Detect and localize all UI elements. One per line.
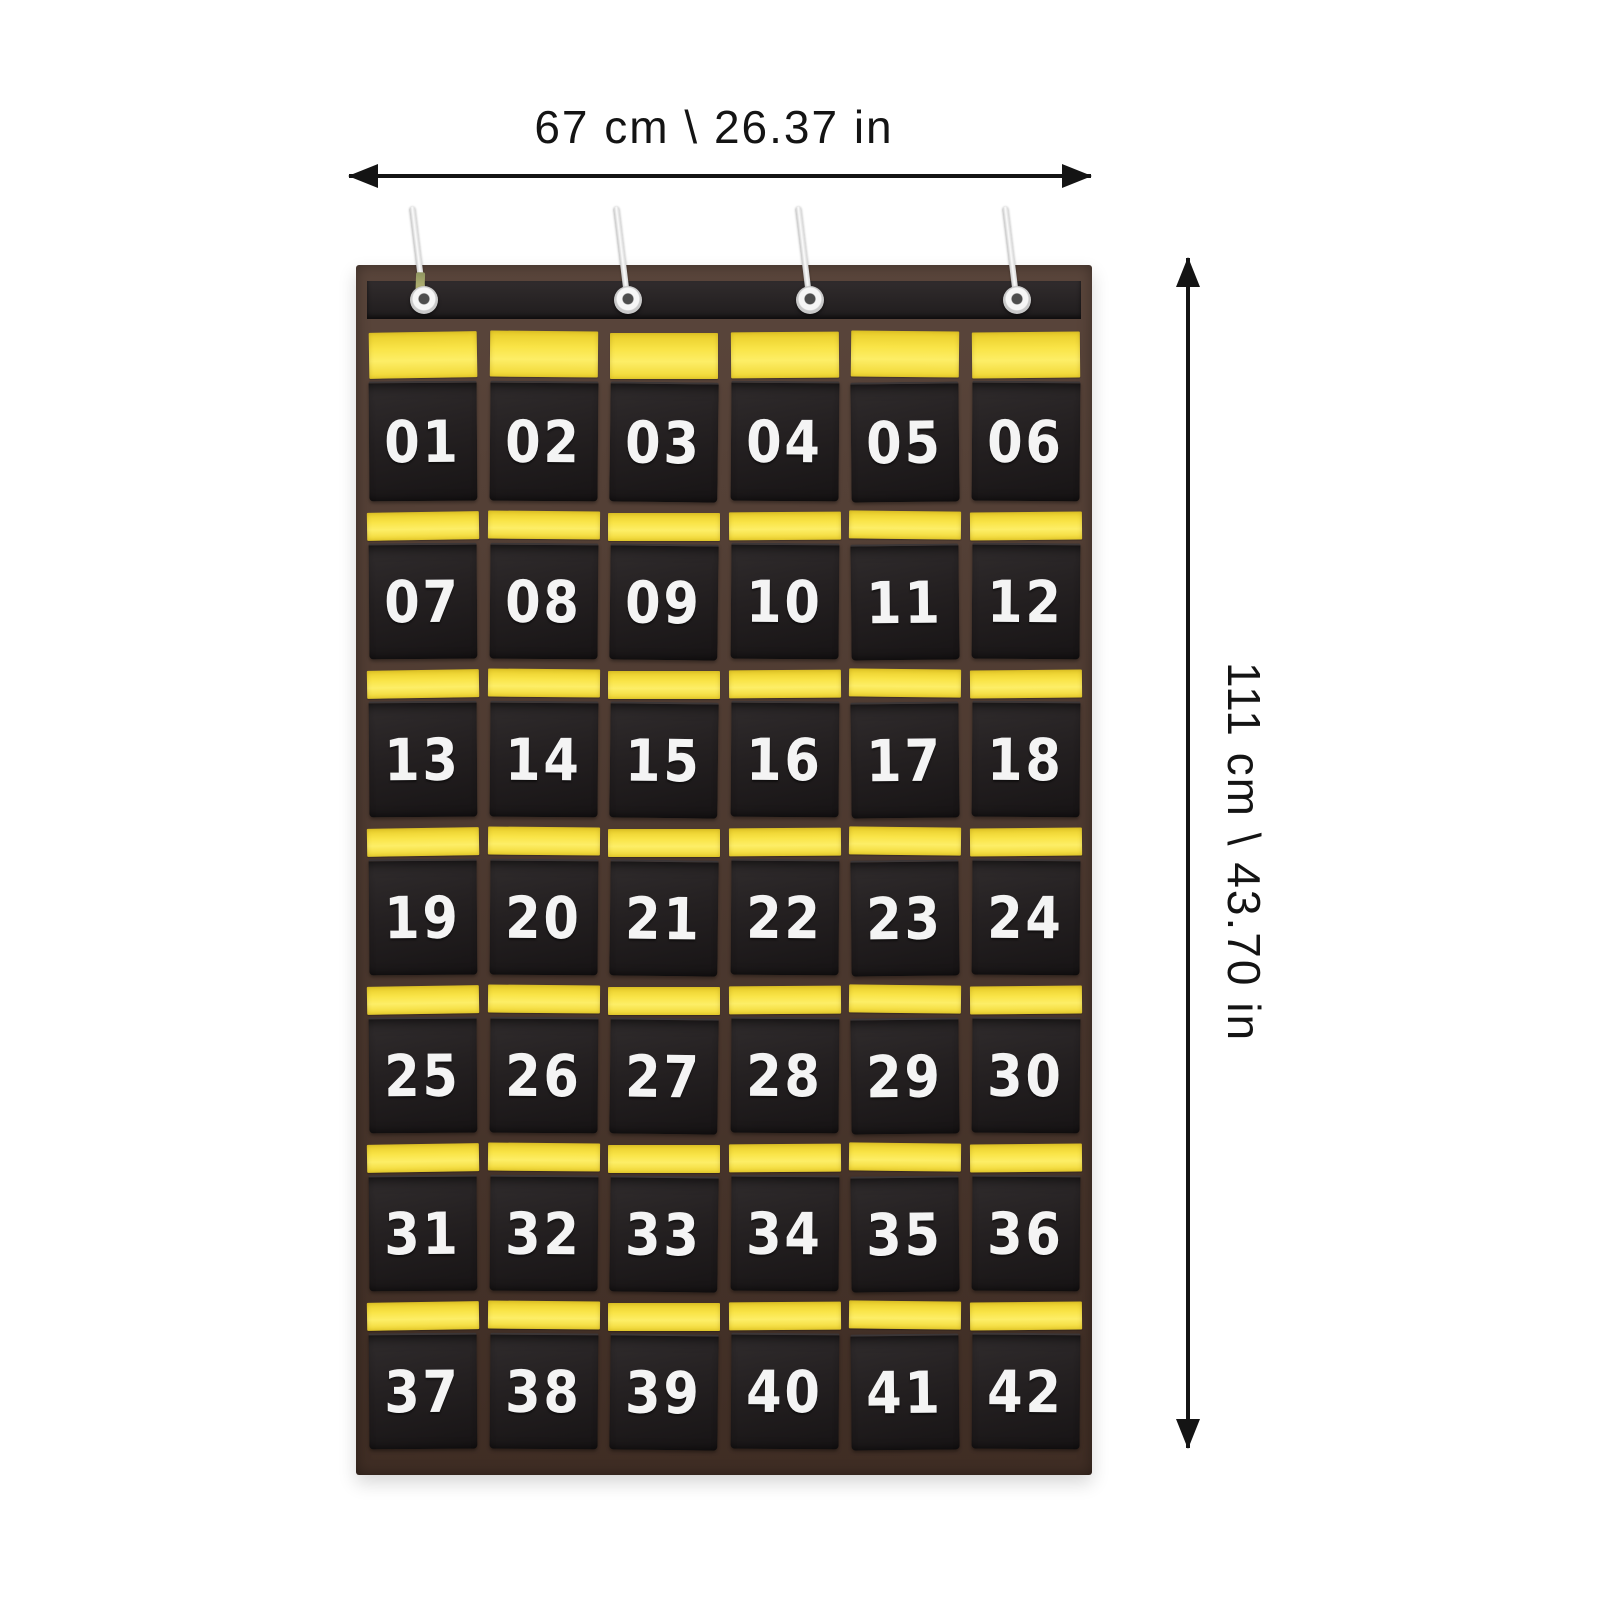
pocket-number: 28: [746, 1047, 823, 1106]
pocket: 06: [971, 381, 1079, 502]
pocket-row: 313233343536: [367, 1175, 1081, 1291]
label-card: [610, 333, 718, 379]
label-card: [487, 511, 599, 540]
label-card: [367, 669, 479, 699]
pocket-number: 18: [987, 731, 1064, 790]
pocket: 05: [850, 381, 959, 502]
pocket-row: 252627282930: [367, 1017, 1081, 1133]
label-card: [608, 671, 720, 699]
grommet-icon: [1003, 286, 1031, 314]
label-card: [487, 1143, 599, 1172]
pocket-row: 131415161718: [367, 701, 1081, 817]
height-dimension-label: 111 cm \ 43.70 in: [1217, 662, 1271, 1042]
pocket-number: 15: [625, 732, 702, 791]
pocket-number: 20: [505, 889, 582, 948]
pocket: 16: [730, 701, 838, 818]
pocket-number: 11: [866, 574, 943, 633]
label-slot-row: [367, 511, 1081, 539]
pocket: 10: [730, 543, 838, 660]
pocket: 18: [971, 701, 1079, 818]
pocket-number: 24: [987, 889, 1064, 948]
pocket: 36: [971, 1175, 1079, 1292]
pocket-number: 04: [746, 413, 823, 472]
pocket-number: 08: [505, 573, 582, 632]
label-card: [849, 510, 961, 539]
pocket-number: 33: [625, 1206, 702, 1265]
width-dimension-label: 67 cm \ 26.37 in: [534, 100, 893, 154]
pocket: 14: [489, 701, 597, 818]
label-card: [487, 669, 599, 698]
label-card: [969, 1302, 1081, 1331]
label-card: [487, 827, 599, 856]
pocket: 30: [971, 1017, 1079, 1134]
pocket-number: 32: [505, 1205, 582, 1264]
pocket: 33: [609, 1175, 718, 1292]
pocket-number: 17: [866, 732, 943, 791]
pocket: 01: [369, 381, 477, 502]
pocket-number: 03: [625, 414, 702, 473]
pocket-number: 10: [746, 573, 823, 632]
label-card: [849, 984, 961, 1013]
pocket: 27: [609, 1017, 718, 1134]
pocket-chart-organizer: 0102030405060708091011121314151617181920…: [356, 265, 1092, 1475]
pocket-number: 06: [987, 413, 1064, 472]
pocket: 40: [730, 1333, 838, 1450]
pocket: 42: [971, 1333, 1079, 1450]
label-slot-row: [367, 985, 1081, 1013]
label-card: [969, 670, 1081, 699]
label-card: [728, 1144, 840, 1173]
pocket-number: 31: [384, 1205, 461, 1264]
label-card: [608, 1145, 720, 1173]
label-slot-row: [367, 1301, 1081, 1329]
label-card: [487, 985, 599, 1014]
pocket-number: 23: [866, 890, 943, 949]
label-slot-row: [367, 669, 1081, 697]
pocket-number: 07: [384, 573, 461, 632]
pocket: 04: [730, 381, 838, 502]
pocket-number: 38: [505, 1363, 582, 1422]
pocket: 26: [489, 1017, 597, 1134]
pocket-row: 070809101112: [367, 543, 1081, 659]
pocket: 21: [609, 859, 718, 976]
label-card: [487, 1301, 599, 1330]
label-slot-row: [367, 827, 1081, 855]
pocket-row: 192021222324: [367, 859, 1081, 975]
pocket-number: 14: [505, 731, 582, 790]
label-card: [728, 670, 840, 699]
header-band: [367, 281, 1081, 319]
label-card: [730, 332, 838, 379]
label-card: [728, 986, 840, 1015]
label-card: [728, 828, 840, 857]
pocket: 38: [489, 1333, 597, 1450]
pocket: 08: [489, 543, 597, 660]
product-photo: 67 cm \ 26.37 in 111 cm \ 43.70 in 01020…: [0, 0, 1600, 1600]
label-card: [851, 330, 959, 377]
pocket-number: 42: [987, 1363, 1064, 1422]
width-arrow-icon: [349, 174, 1091, 178]
grommet-icon: [614, 286, 642, 314]
label-slot-row: [367, 331, 1081, 377]
pocket-number: 26: [505, 1047, 582, 1106]
pocket: 29: [850, 1017, 959, 1134]
pocket: 02: [489, 381, 597, 502]
pocket: 32: [489, 1175, 597, 1292]
label-card: [369, 331, 477, 379]
label-card: [971, 332, 1079, 379]
label-card: [728, 1302, 840, 1331]
label-card: [367, 985, 479, 1015]
pocket-number: 36: [987, 1205, 1064, 1264]
grommet-icon: [410, 286, 438, 314]
pocket-row: 010203040506: [367, 381, 1081, 501]
pocket: 17: [850, 701, 959, 818]
pocket: 20: [489, 859, 597, 976]
pocket-number: 05: [866, 414, 943, 473]
pocket: 28: [730, 1017, 838, 1134]
pocket-number: 40: [746, 1363, 823, 1422]
grommet-icon: [796, 286, 824, 314]
label-card: [969, 1144, 1081, 1173]
label-slot-row: [367, 1143, 1081, 1171]
label-card: [608, 987, 720, 1015]
pocket-number: 35: [866, 1206, 943, 1265]
pocket: 35: [850, 1175, 959, 1292]
label-card: [489, 331, 597, 378]
pocket: 41: [850, 1333, 959, 1450]
label-card: [608, 829, 720, 857]
pocket: 03: [609, 381, 718, 502]
pocket-number: 25: [384, 1047, 461, 1106]
pocket-number: 19: [384, 889, 461, 948]
label-card: [367, 827, 479, 857]
label-card: [849, 1300, 961, 1329]
pocket: 22: [730, 859, 838, 976]
pocket: 09: [609, 543, 718, 660]
label-card: [969, 986, 1081, 1015]
label-card: [367, 1143, 479, 1173]
pocket-number: 21: [625, 890, 702, 949]
label-card: [969, 512, 1081, 541]
pocket-number: 13: [384, 731, 461, 790]
pocket-number: 27: [625, 1048, 702, 1107]
pocket-number: 01: [384, 413, 461, 472]
label-card: [849, 1142, 961, 1171]
pocket-number: 34: [746, 1205, 823, 1264]
pocket: 37: [369, 1333, 477, 1450]
pocket: 31: [369, 1175, 477, 1292]
label-card: [728, 512, 840, 541]
label-card: [608, 1303, 720, 1331]
pocket: 07: [369, 543, 477, 660]
pocket: 39: [609, 1333, 718, 1450]
pocket: 25: [369, 1017, 477, 1134]
pocket-number: 22: [746, 889, 823, 948]
pocket-number: 29: [866, 1048, 943, 1107]
pocket: 24: [971, 859, 1079, 976]
pocket-number: 02: [505, 413, 582, 472]
label-card: [849, 826, 961, 855]
pocket: 23: [850, 859, 959, 976]
label-card: [969, 828, 1081, 857]
pocket: 15: [609, 701, 718, 818]
pocket-row: 373839404142: [367, 1333, 1081, 1449]
label-card: [608, 513, 720, 541]
pocket-number: 09: [625, 574, 702, 633]
pocket: 13: [369, 701, 477, 818]
pocket-number: 39: [625, 1364, 702, 1423]
pocket-number: 41: [866, 1364, 943, 1423]
label-card: [367, 511, 479, 541]
pocket-number: 37: [384, 1363, 461, 1422]
pocket: 12: [971, 543, 1079, 660]
label-card: [367, 1301, 479, 1331]
height-arrow-icon: [1186, 258, 1190, 1448]
pocket: 11: [850, 543, 959, 660]
label-card: [849, 668, 961, 697]
pocket-number: 16: [746, 731, 823, 790]
pocket: 34: [730, 1175, 838, 1292]
pocket-number: 12: [987, 573, 1064, 632]
pocket-grid: 0102030405060708091011121314151617181920…: [367, 331, 1081, 1449]
pocket-number: 30: [987, 1047, 1064, 1106]
pocket: 19: [369, 859, 477, 976]
